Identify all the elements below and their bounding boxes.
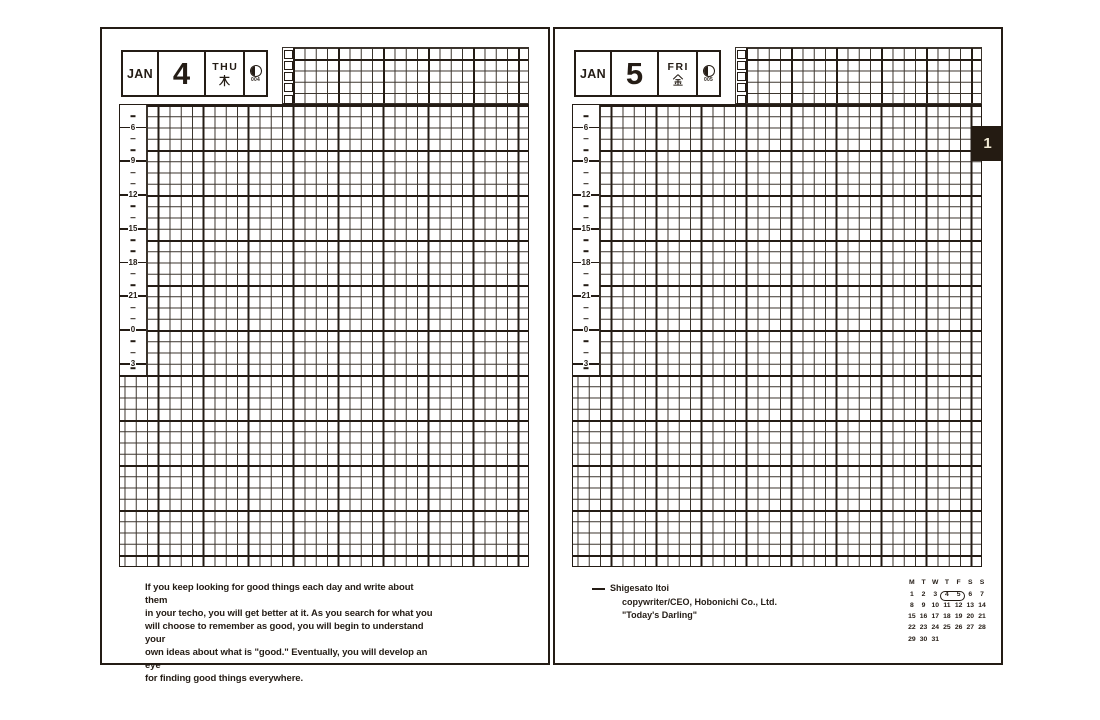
- time-tick: [584, 367, 589, 369]
- time-tick: [584, 183, 589, 185]
- day-grid: 691215182103: [572, 104, 982, 567]
- day-of-year: 004: [251, 78, 260, 83]
- author-name: Shigesato Itoi: [610, 582, 669, 596]
- todo-checkbox: [284, 50, 293, 59]
- calendar-weekday-header: M: [906, 580, 918, 587]
- calendar-day: 9: [918, 603, 930, 610]
- weekday-cell: FRI: [657, 52, 696, 95]
- quote-attribution: Shigesato Itoi copywriter/CEO, Hobonichi…: [592, 582, 777, 623]
- calendar-day: 13: [964, 603, 976, 610]
- calendar-weekday-header: S: [964, 580, 976, 587]
- page-right: JAN 5 FRI 005 6912: [553, 27, 1003, 665]
- time-tick: [584, 115, 589, 117]
- calendar-day: 1: [906, 592, 918, 599]
- time-rule: [573, 228, 581, 230]
- kanji-friday-icon: [672, 74, 684, 86]
- month-label: JAN: [576, 52, 610, 95]
- date-header-left: JAN 4 THU 004: [121, 50, 268, 97]
- time-rule: [120, 228, 128, 230]
- time-tick: [131, 239, 136, 241]
- calendar-day: 24: [929, 625, 941, 632]
- time-tick: [131, 284, 136, 286]
- calendar-day: 12: [953, 603, 965, 610]
- time-tick: [584, 284, 589, 286]
- time-rule: [573, 363, 583, 365]
- calendar-day: 6: [964, 592, 976, 599]
- calendar-weekday-header: T: [941, 580, 953, 587]
- time-label-row: 12: [573, 191, 599, 199]
- time-tick: [584, 307, 589, 309]
- calendar-day: 20: [964, 614, 976, 621]
- time-tick: [584, 138, 589, 140]
- memo-grid: [735, 47, 982, 104]
- calendar-day: 28: [976, 625, 988, 632]
- time-rule: [589, 329, 599, 331]
- time-tick: [131, 205, 136, 207]
- time-tick: [131, 217, 136, 219]
- calendar-weekday-header: F: [953, 580, 965, 587]
- checkbox-column: [736, 48, 746, 103]
- time-label-row: 9: [120, 157, 146, 165]
- time-rule: [138, 194, 146, 196]
- calendar-week-row: 15161718192021: [906, 612, 988, 623]
- calendar-week-row: 891011121314: [906, 601, 988, 612]
- time-tick: [584, 273, 589, 275]
- time-rule: [589, 160, 599, 162]
- time-rule: [591, 228, 599, 230]
- time-label-row: 0: [573, 326, 599, 334]
- author-role: copywriter/CEO, Hobonichi Co., Ltd.: [622, 596, 777, 610]
- calendar-day: 29: [906, 637, 918, 644]
- calendar-day: 19: [953, 614, 965, 621]
- time-rule: [120, 194, 128, 196]
- checkbox-column: [283, 48, 293, 103]
- time-rule: [591, 262, 599, 264]
- time-tick: [584, 205, 589, 207]
- calendar-day: 14: [976, 603, 988, 610]
- todo-checkbox: [737, 50, 746, 59]
- time-tick: [131, 367, 136, 369]
- todo-checkbox: [737, 61, 746, 70]
- weekday-label: FRI: [668, 61, 689, 73]
- time-rule: [573, 329, 583, 331]
- time-rule: [591, 194, 599, 196]
- time-rule: [573, 160, 583, 162]
- calendar-day: 8: [906, 603, 918, 610]
- time-rule: [136, 363, 146, 365]
- quote-line: own ideas about what is "good." Eventual…: [145, 646, 437, 672]
- time-tick: [584, 340, 589, 342]
- calendar-week-row: 22232425262728: [906, 623, 988, 634]
- calendar-week-row: 293031: [906, 634, 988, 645]
- time-tick: [584, 318, 589, 320]
- quote-line: will choose to remember as good, you wil…: [145, 620, 437, 646]
- calendar-day: 22: [906, 625, 918, 632]
- time-rule: [138, 262, 146, 264]
- time-rule: [573, 194, 581, 196]
- calendar-header-row: MTWTFSS: [906, 578, 988, 589]
- month-tab: 1: [972, 126, 1003, 161]
- time-tick: [584, 239, 589, 241]
- time-tick: [131, 352, 136, 354]
- calendar-day: 25: [941, 625, 953, 632]
- time-rule: [589, 363, 599, 365]
- calendar-day: 31: [929, 637, 941, 644]
- calendar-day: 27: [964, 625, 976, 632]
- calendar-day: 18: [941, 614, 953, 621]
- time-tick: [131, 183, 136, 185]
- calendar-day: 2: [918, 592, 930, 599]
- time-rule: [589, 127, 599, 129]
- time-tick: [131, 138, 136, 140]
- day-of-year: 005: [704, 78, 713, 83]
- moon-cell: 004: [243, 52, 266, 95]
- weekday-cell: THU: [204, 52, 243, 95]
- time-label-row: 21: [573, 292, 599, 300]
- planner-spread: JAN 4 THU 004 6912: [0, 0, 1100, 720]
- time-tick: [584, 217, 589, 219]
- time-rule: [136, 329, 146, 331]
- todo-checkbox: [737, 95, 746, 104]
- time-tick: [131, 273, 136, 275]
- todo-checkbox: [284, 72, 293, 81]
- time-label-row: 18: [573, 259, 599, 267]
- month-label: JAN: [123, 52, 157, 95]
- time-rule: [591, 295, 599, 297]
- calendar-weekday-header: S: [976, 580, 988, 587]
- time-label: 12: [581, 191, 592, 199]
- calendar-day: 21: [976, 614, 988, 621]
- time-rule: [120, 363, 130, 365]
- moon-cell: 005: [696, 52, 719, 95]
- time-rule: [138, 295, 146, 297]
- time-tick: [584, 149, 589, 151]
- time-label-row: 9: [573, 157, 599, 165]
- calendar-day: 17: [929, 614, 941, 621]
- calendar-day: 11: [941, 603, 953, 610]
- time-column: 691215182103: [120, 105, 147, 375]
- time-label-row: 21: [120, 292, 146, 300]
- time-rule: [120, 160, 130, 162]
- day-number: 5: [610, 52, 657, 95]
- time-label-row: 15: [120, 225, 146, 233]
- time-tick: [584, 172, 589, 174]
- time-label-row: 12: [120, 191, 146, 199]
- calendar-day: 15: [906, 614, 918, 621]
- memo-grid-divider: [736, 59, 981, 61]
- mini-month-calendar: MTWTFSS123456789101112131415161718192021…: [906, 578, 988, 646]
- calendar-weekday-header: T: [918, 580, 930, 587]
- quote-line: in your techo, you will get better at it…: [145, 607, 437, 620]
- day-number: 4: [157, 52, 204, 95]
- calendar-day: 23: [918, 625, 930, 632]
- time-label-row: 18: [120, 259, 146, 267]
- time-tick: [131, 115, 136, 117]
- time-label: 18: [581, 259, 592, 267]
- time-rule: [138, 228, 146, 230]
- time-label: 21: [128, 292, 139, 300]
- page-left: JAN 4 THU 004 6912: [100, 27, 550, 665]
- time-tick: [131, 250, 136, 252]
- todo-checkbox: [737, 72, 746, 81]
- time-tick: [131, 318, 136, 320]
- calendar-day: 30: [918, 637, 930, 644]
- time-label-row: 6: [120, 124, 146, 132]
- calendar-day: 26: [953, 625, 965, 632]
- time-rule: [573, 127, 583, 129]
- time-rule: [120, 127, 130, 129]
- time-tick: [584, 250, 589, 252]
- day-grid: 691215182103: [119, 104, 529, 567]
- time-tick: [131, 340, 136, 342]
- time-label-row: 0: [120, 326, 146, 334]
- todo-checkbox: [284, 61, 293, 70]
- memo-grid: [282, 47, 529, 104]
- calendar-weekday-header: W: [929, 580, 941, 587]
- calendar-day: 7: [976, 592, 988, 599]
- weekday-label: THU: [212, 61, 238, 73]
- time-tick: [131, 149, 136, 151]
- calendar-day: 10: [929, 603, 941, 610]
- time-column: 691215182103: [573, 105, 600, 375]
- attribution-dash-icon: [592, 588, 605, 590]
- time-tick: [584, 352, 589, 354]
- time-label: 18: [128, 259, 139, 267]
- time-rule: [120, 262, 128, 264]
- time-label-row: 6: [573, 124, 599, 132]
- moon-phase-icon: [250, 65, 262, 77]
- time-label: 12: [128, 191, 139, 199]
- time-label-row: 15: [573, 225, 599, 233]
- quote-line: for finding good things everywhere.: [145, 672, 437, 685]
- time-tick: [131, 172, 136, 174]
- moon-phase-icon: [703, 65, 715, 77]
- memo-grid-divider: [283, 59, 528, 61]
- todo-checkbox: [284, 83, 293, 92]
- time-label: 21: [581, 292, 592, 300]
- time-rule: [136, 127, 146, 129]
- quote-source: "Today's Darling": [622, 609, 777, 623]
- time-rule: [573, 295, 581, 297]
- time-label: 15: [581, 225, 592, 233]
- time-label: 15: [128, 225, 139, 233]
- calendar-day: 16: [918, 614, 930, 621]
- time-tick: [131, 307, 136, 309]
- daily-quote: If you keep looking for good things each…: [145, 581, 437, 685]
- kanji-thursday-icon: [218, 74, 231, 87]
- todo-checkbox: [284, 95, 293, 104]
- time-rule: [573, 262, 581, 264]
- todo-checkbox: [737, 83, 746, 92]
- current-days-highlight: [940, 591, 966, 601]
- date-header-right: JAN 5 FRI 005: [574, 50, 721, 97]
- time-rule: [120, 329, 130, 331]
- time-rule: [120, 295, 128, 297]
- quote-line: If you keep looking for good things each…: [145, 581, 437, 607]
- time-rule: [136, 160, 146, 162]
